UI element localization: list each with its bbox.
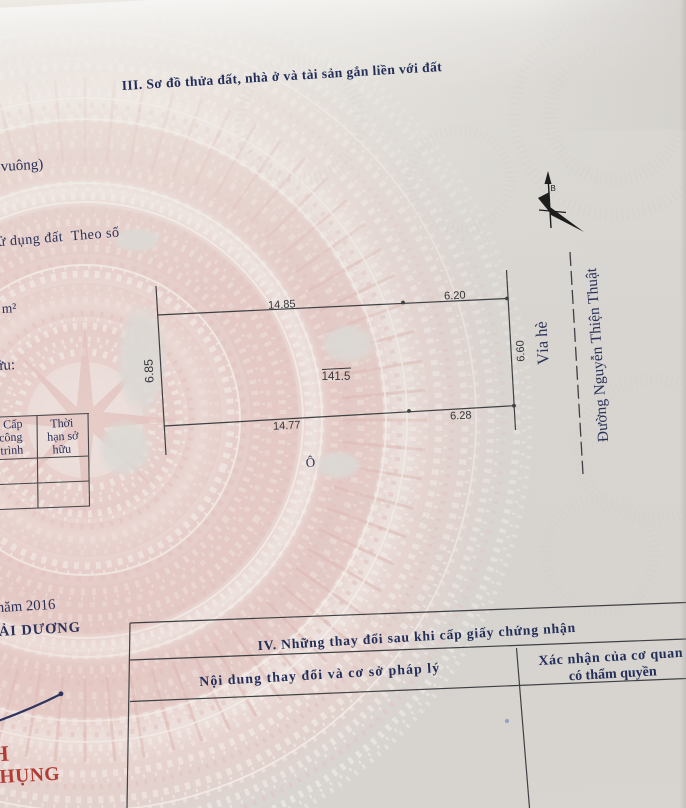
- svg-text:H: H: [0, 741, 9, 767]
- svg-text:vuông): vuông): [0, 157, 43, 175]
- svg-text:141.5: 141.5: [322, 371, 351, 383]
- svg-text:Ô: Ô: [305, 455, 315, 470]
- svg-text:6.28: 6.28: [450, 409, 472, 422]
- svg-text:6.85: 6.85: [141, 359, 156, 384]
- svg-text:Vỉa hè: Vỉa hè: [531, 321, 552, 365]
- svg-text:B: B: [551, 184, 556, 193]
- svg-text:6.60: 6.60: [514, 340, 527, 362]
- svg-text:m²: m²: [1, 300, 16, 316]
- svg-text:14.77: 14.77: [273, 419, 301, 432]
- svg-text:hữu:: hữu:: [0, 357, 16, 374]
- svg-text:trình: trình: [0, 442, 23, 457]
- svg-text:hữu: hữu: [52, 442, 71, 457]
- svg-text:HỤNG: HỤNG: [0, 764, 61, 788]
- svg-text:14.85: 14.85: [268, 298, 296, 311]
- svg-text:6.20: 6.20: [444, 289, 466, 302]
- svg-text:năm 2016: năm 2016: [0, 597, 56, 616]
